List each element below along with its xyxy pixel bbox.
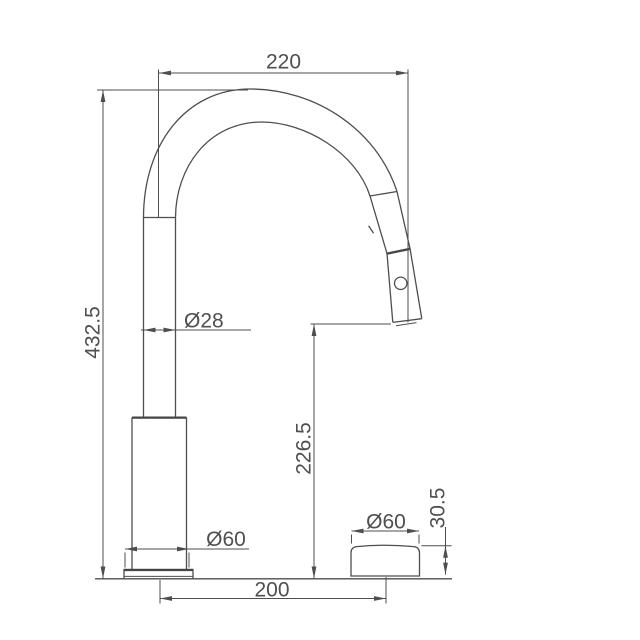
- spout-outer-arc: [144, 89, 398, 218]
- arrowhead-top: [101, 90, 106, 102]
- dimension-base-to-handle-distance: 200: [160, 577, 386, 604]
- arrowhead-top: [443, 546, 448, 558]
- head-connector-detail-tick: [369, 226, 374, 233]
- arrowhead-left: [160, 596, 172, 601]
- arrowhead-left: [352, 529, 364, 534]
- arrowhead-right: [396, 71, 408, 76]
- arrowhead-right: [164, 328, 176, 333]
- arrowhead-bottom: [443, 563, 448, 575]
- dim-label-handle-diameter: Ø60: [366, 511, 406, 534]
- head-outlet-inner-line: [396, 323, 417, 326]
- arrowhead-right: [374, 596, 386, 601]
- dimension-handle-diameter: Ø60: [352, 511, 420, 544]
- dim-label-base-to-handle-distance: 200: [254, 579, 289, 602]
- dim-label-outlet-height: 226.5: [293, 422, 316, 475]
- head-outlet-edge: [393, 319, 422, 323]
- spray-button-icon: [395, 277, 407, 289]
- dimension-total-height: 432.5: [82, 90, 249, 579]
- arrowhead-right: [177, 547, 189, 552]
- dim-label-spout-reach: 220: [266, 51, 301, 74]
- handle-knob-outline: [351, 545, 420, 576]
- head-connector-left-edge: [370, 196, 387, 254]
- dimension-spout-tube-diameter: Ø28: [141, 310, 251, 333]
- technical-drawing: 220 432.5 Ø28 226.5 Ø60 Ø: [0, 0, 640, 640]
- arrowhead-bottom: [101, 567, 106, 579]
- head-right-edge: [410, 249, 422, 319]
- head-left-edge: [387, 254, 393, 323]
- arrowhead-left: [144, 328, 156, 333]
- arrowhead-bottom: [312, 567, 317, 579]
- arrowhead-top: [312, 324, 317, 336]
- arrowhead-right: [407, 529, 419, 534]
- remote-handle-knob: [351, 545, 420, 576]
- spout-inner-arc: [176, 122, 371, 218]
- sprayer-head: [369, 192, 422, 326]
- dim-label-base-diameter: Ø60: [206, 528, 246, 551]
- dim-label-spout-tube-diameter: Ø28: [184, 310, 224, 333]
- faucet-outline: [124, 89, 397, 579]
- dimension-outlet-height: 226.5: [293, 324, 392, 579]
- dimension-spout-reach: 220: [159, 51, 409, 323]
- body-cylinder: [132, 418, 187, 570]
- head-lower-seam: [387, 249, 411, 254]
- dim-label-total-height: 432.5: [82, 306, 105, 359]
- arrowhead-left: [125, 547, 137, 552]
- dimension-handle-height: 30.5: [422, 488, 452, 575]
- head-upper-seam: [370, 192, 397, 197]
- dim-label-handle-height: 30.5: [427, 488, 450, 529]
- arrowhead-left: [159, 71, 171, 76]
